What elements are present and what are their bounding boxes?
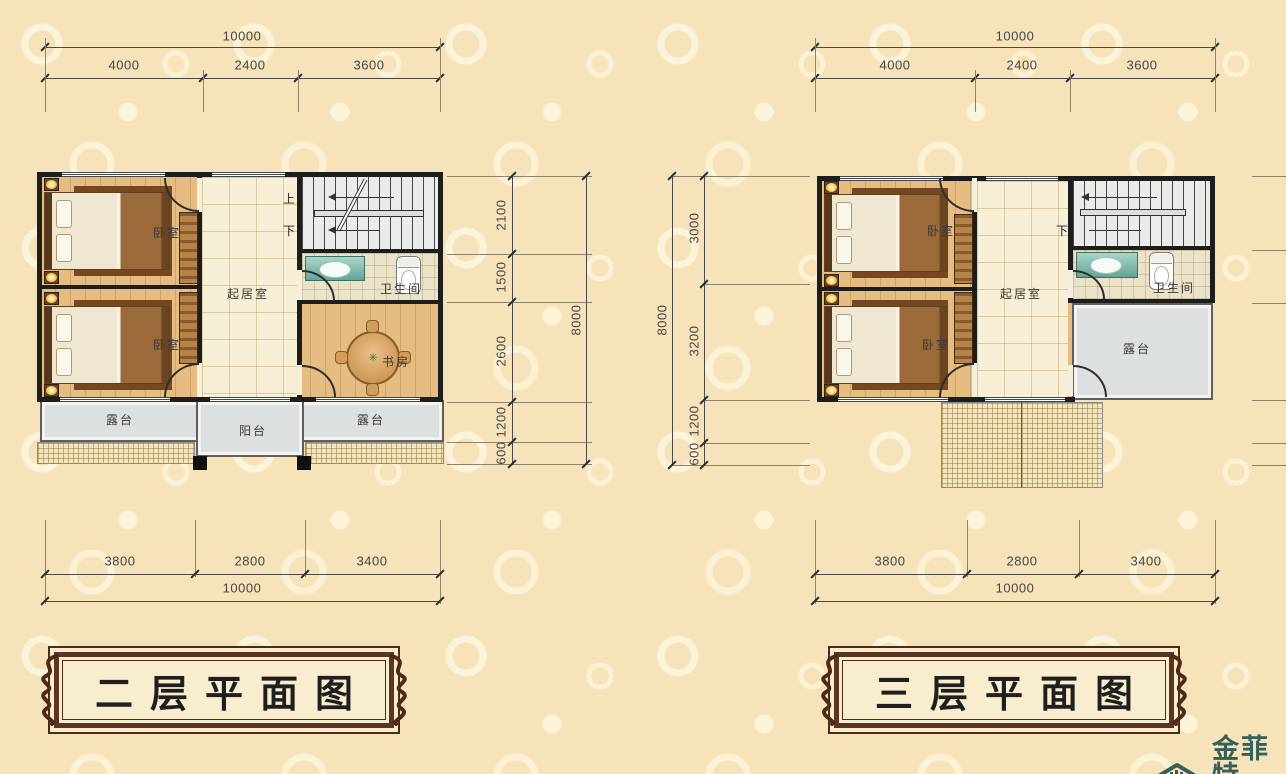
wardrobe [954, 214, 973, 284]
extension-line [447, 176, 592, 177]
room-label-bedroom: 卧室 [927, 225, 955, 237]
logo-name: 金菲特 [1212, 736, 1286, 774]
extension-line [447, 302, 592, 303]
wall [1210, 176, 1215, 303]
window [985, 397, 1065, 402]
window [840, 176, 943, 181]
room-label-bedroom: 卧室 [153, 227, 181, 239]
extension-line [815, 520, 816, 604]
extension-line [1252, 443, 1286, 444]
scroll-ornament-icon [1168, 653, 1194, 727]
extension-line [815, 38, 816, 112]
room-label-balcony: 阳台 [239, 425, 267, 437]
extension-line [447, 464, 592, 465]
extension-line [1252, 465, 1286, 466]
extension-line [1252, 400, 1286, 401]
wall [438, 172, 443, 402]
dim-line [512, 176, 513, 464]
dim-line [45, 601, 440, 602]
dim-label: 1200 [495, 407, 508, 438]
nightstand [44, 292, 59, 305]
logo: JIN FEI TE 金菲特 [1148, 736, 1286, 774]
window [62, 172, 165, 177]
dim-label: 8000 [656, 305, 669, 336]
dim-line [45, 47, 440, 48]
stair-arrow [336, 230, 380, 231]
dim-label: 10000 [223, 30, 262, 43]
extension-line [305, 520, 306, 577]
stair-rail [1080, 209, 1186, 216]
extension-line [975, 70, 976, 112]
plan-title: 三层平面图 [858, 663, 1150, 718]
dim-label: 1200 [688, 406, 701, 437]
chair [366, 320, 379, 333]
extension-line [704, 443, 810, 444]
stair-label-up: 上 [283, 193, 295, 205]
extension-line [704, 400, 810, 401]
room-label-study: 书房 [382, 356, 410, 368]
nightstand [44, 271, 59, 284]
dim-label: 3800 [875, 555, 906, 568]
roof-hatch [37, 442, 195, 464]
extension-line [447, 254, 592, 255]
room-label-living: 起居室 [227, 288, 269, 300]
dim-tick [1210, 596, 1219, 605]
room-label-bathroom: 卫生间 [1153, 282, 1195, 294]
wardrobe [954, 292, 973, 364]
dim-label: 3200 [688, 326, 701, 357]
stair-arrow [336, 197, 394, 198]
extension-line [447, 402, 592, 403]
stair-arrow-head [1081, 193, 1089, 201]
bed [44, 306, 170, 384]
column [193, 456, 207, 470]
extension-line [447, 442, 592, 443]
nightstand [824, 274, 839, 287]
house-roof-icon: JIN FEI TE [1148, 760, 1206, 774]
wall [1068, 299, 1215, 303]
dim-tick [435, 596, 444, 605]
stair-arrow [1089, 230, 1141, 231]
dim-label: 4000 [880, 59, 911, 72]
dim-label: 8000 [570, 305, 583, 336]
window [212, 172, 285, 177]
window [60, 397, 170, 402]
scroll-ornament-icon [814, 653, 840, 727]
window [986, 176, 1058, 181]
scroll-ornament-icon [388, 653, 414, 727]
dim-line [586, 176, 587, 464]
dim-line [815, 601, 1215, 602]
dim-label: 2800 [235, 555, 266, 568]
dim-label: 2100 [495, 200, 508, 231]
window [838, 397, 948, 402]
extension-line [440, 38, 441, 112]
plan-title: 二层平面图 [78, 663, 370, 718]
stair-arrow-head [328, 193, 336, 201]
dim-label: 10000 [996, 30, 1035, 43]
window [210, 397, 290, 402]
dim-label: 3600 [354, 59, 385, 72]
dim-label: 2400 [1007, 59, 1038, 72]
stair-arrow [1089, 197, 1157, 198]
extension-line [298, 70, 299, 112]
nightstand [824, 292, 839, 305]
title-frame: 二层平面图 [48, 646, 400, 734]
dim-line [815, 47, 1215, 48]
wall [37, 285, 202, 289]
room-label-living: 起居室 [1000, 288, 1042, 300]
dim-line [45, 574, 440, 575]
dim-label: 4000 [109, 59, 140, 72]
extension-line [1252, 303, 1286, 304]
dim-label: 3400 [357, 555, 388, 568]
stair-rail [314, 210, 424, 217]
dim-label: 3800 [105, 555, 136, 568]
extension-line [1252, 176, 1286, 177]
dim-label: 3000 [688, 213, 701, 244]
dim-label: 2400 [235, 59, 266, 72]
room-label-bedroom: 卧室 [153, 339, 181, 351]
column [297, 456, 311, 470]
nightstand [824, 181, 839, 194]
dim-label: 600 [688, 442, 701, 465]
dim-label: 2600 [495, 336, 508, 367]
extension-line [704, 284, 810, 285]
wall [1068, 246, 1215, 250]
floor-plan-sheet: 卧室 卧室 起居室 卫生间 书房 露台 阳台 露台 上 下 10000 4000… [0, 0, 1286, 774]
room-label-bedroom: 卧室 [922, 339, 950, 351]
dim-line [815, 574, 1215, 575]
extension-line [967, 520, 968, 577]
room-label-terrace: 露台 [357, 414, 385, 426]
chair [366, 383, 379, 396]
dim-label: 3400 [1131, 555, 1162, 568]
extension-line [1070, 70, 1071, 112]
title-frame: 三层平面图 [828, 646, 1180, 734]
dim-line [45, 78, 440, 79]
wardrobe [179, 212, 198, 284]
roof-ridge-line [1021, 402, 1022, 488]
room-label-bathroom: 卫生间 [380, 283, 422, 295]
room-label-terrace: 露台 [1123, 343, 1151, 355]
dim-label: 1500 [495, 262, 508, 293]
extension-line [1079, 520, 1080, 577]
dim-line [672, 176, 673, 465]
stair-arrow-head [328, 226, 336, 234]
wall [817, 287, 977, 291]
nightstand [44, 178, 59, 191]
extension-line [440, 520, 441, 604]
stair-label-down: 下 [1056, 225, 1068, 237]
extension-line [1215, 520, 1216, 604]
roof-hatch [941, 402, 1103, 488]
extension-line [45, 38, 46, 112]
window [316, 397, 420, 402]
dim-label: 2800 [1007, 555, 1038, 568]
extension-line [672, 176, 810, 177]
dim-label: 10000 [223, 582, 262, 595]
scroll-ornament-icon [34, 653, 60, 727]
dim-label: 10000 [996, 582, 1035, 595]
roof-hatch [305, 442, 444, 464]
dim-line [704, 176, 705, 465]
extension-line [1215, 38, 1216, 112]
bed [44, 192, 170, 270]
dim-label: 3600 [1127, 59, 1158, 72]
room-label-terrace: 露台 [106, 414, 134, 426]
nightstand [44, 384, 59, 397]
stair-label-down: 下 [283, 225, 295, 237]
extension-line [203, 70, 204, 112]
wardrobe [179, 292, 198, 364]
extension-line [45, 520, 46, 604]
extension-line [1252, 250, 1286, 251]
extension-line [195, 520, 196, 577]
wall [297, 249, 443, 253]
nightstand [824, 384, 839, 397]
dim-label: 600 [495, 441, 508, 464]
chair [335, 351, 348, 364]
dim-line [815, 78, 1215, 79]
